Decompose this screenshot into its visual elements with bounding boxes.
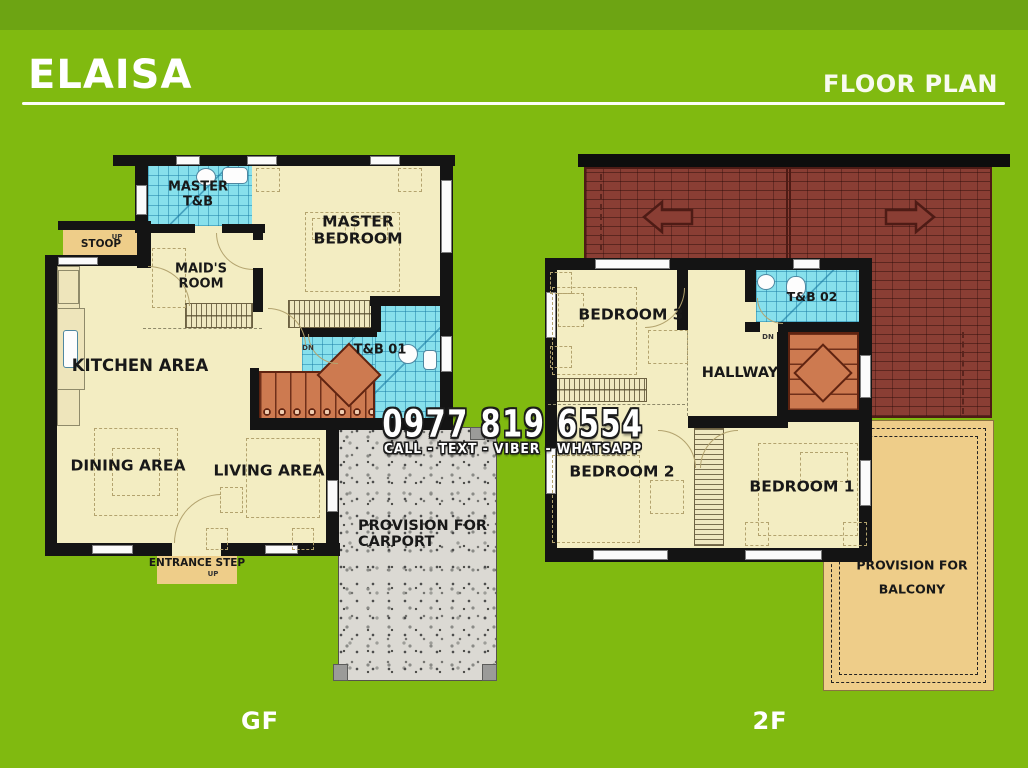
master-plant-2 [398, 168, 422, 192]
roof-eave-line-left [600, 174, 602, 250]
bedroom1-plant-1 [745, 522, 769, 546]
label-master-tb: MASTER T&B [168, 180, 228, 209]
gf-wall-left [45, 255, 57, 556]
master-closet [288, 300, 372, 328]
label-maids-room-line2: ROOM [175, 277, 227, 292]
carport-slab [338, 427, 497, 681]
sf-window-top-1 [595, 259, 670, 269]
kitchen-stove [58, 270, 79, 304]
bedroom2-chair [650, 480, 684, 514]
tb02-sink [757, 274, 775, 290]
sf-wall-tb02-bottom-a [745, 322, 760, 332]
master-plant-1 [256, 168, 280, 192]
label-entrance-step: ENTRANCE STEP [149, 558, 245, 570]
label-tb01: T&B 01 [354, 344, 407, 359]
gf-window-top-3 [370, 156, 400, 165]
sf-window-top-2 [793, 259, 820, 269]
gf-wall-maid-right-b [253, 268, 263, 312]
label-kitchen-area: KITCHEN AREA [72, 357, 208, 375]
marker-dn-tb02: DN [762, 333, 774, 341]
label-master-tb-line1: MASTER [168, 180, 228, 195]
page-title: ELAISA [28, 52, 192, 98]
living-plant-1 [206, 528, 228, 550]
sf-window-bottom-2 [745, 550, 822, 560]
label-carport: PROVISION FOR CARPORT [358, 518, 487, 550]
label-carport-line2: CARPORT [358, 534, 487, 550]
living-plant-2 [292, 528, 314, 550]
roof-slope-arrow-left [642, 198, 694, 236]
bedroom3-desk [648, 330, 688, 364]
label-hallway: HALLWAY [702, 365, 778, 381]
sf-wall-tb02-bottom-b [778, 322, 872, 332]
label-maids-room: MAID'S ROOM [175, 262, 227, 291]
contact-phone-number: 0977 819 6554 [382, 403, 643, 446]
label-balcony-line1: PROVISION FOR [856, 553, 967, 577]
gf-window-kitchen [58, 257, 98, 265]
sf-window-right-1 [860, 355, 871, 398]
gf-window-bottom-1 [92, 545, 133, 554]
gf-wall-top [113, 155, 455, 166]
bedroom3-plant-2 [550, 346, 572, 368]
gf-window-top-1 [176, 156, 200, 165]
label-master-tb-line2: T&B [168, 195, 228, 210]
maids-closet [185, 303, 253, 328]
gf-window-mastertb [136, 185, 147, 215]
sf-window-right-2 [860, 460, 871, 506]
gf-window-right-1 [441, 180, 452, 253]
gf-window-living-right [327, 480, 338, 512]
kitchen-maid-boundary [143, 328, 262, 329]
sf-window-bottom-1 [593, 550, 668, 560]
roof-ridge-bar [578, 154, 1010, 167]
label-maids-room-line1: MAID'S [175, 262, 227, 277]
gf-wall-stairs-left [250, 368, 259, 430]
header-divider [22, 102, 1005, 105]
tb01-sink [423, 350, 437, 370]
marker-up-stoop: UP [112, 233, 123, 241]
label-carport-line1: PROVISION FOR [358, 518, 487, 534]
sf-wall-hall-bottom [688, 416, 788, 428]
label-master-bedroom-line2: BEDROOM [314, 231, 403, 248]
roof-slope-arrow-right [884, 198, 936, 236]
bedroom3-plant-1 [550, 272, 572, 294]
contact-channels: CALL - TEXT - VIBER - WHATSAPP [384, 441, 642, 457]
gf-tag: GF [241, 707, 279, 735]
label-balcony: PROVISION FOR BALCONY [856, 553, 967, 601]
marker-up-entrance: UP [208, 570, 219, 578]
gf-wall-maid-right-a [253, 224, 263, 240]
roof-eave-line-right [962, 332, 964, 414]
page-subtitle: FLOOR PLAN [823, 70, 998, 98]
floor-plan-page: ELAISA FLOOR PLAN [0, 0, 1028, 768]
label-bedroom2: BEDROOM 2 [569, 463, 674, 480]
marker-dn-tb01: DN [302, 344, 314, 352]
label-living-area: LIVING AREA [213, 462, 324, 479]
label-master-bedroom-line1: MASTER [314, 214, 403, 231]
sf-tag: 2F [752, 707, 787, 735]
bedroom3-closet [548, 378, 647, 402]
label-master-bedroom: MASTER BEDROOM [314, 214, 403, 249]
sf-wall-stairs-left [777, 332, 788, 420]
gf-wall-tb01-stub [371, 296, 381, 332]
sf-wall-stairs-bottom [788, 410, 872, 422]
label-dining-area: DINING AREA [71, 457, 186, 474]
label-bedroom1: BEDROOM 1 [749, 478, 854, 495]
label-bedroom3: BEDROOM 3 [578, 306, 683, 323]
gf-window-right-2 [441, 336, 452, 372]
label-balcony-line2: BALCONY [856, 577, 967, 601]
bedroom1-plant-2 [843, 522, 867, 546]
sf-wall-tb02-left [745, 258, 756, 302]
living-side-chair [220, 487, 243, 513]
gf-wall-stoop-top [58, 221, 140, 230]
carport-pillar-left [333, 664, 348, 681]
label-tb02: T&B 02 [787, 290, 838, 304]
carport-pillar-right [482, 664, 497, 681]
gf-window-top-2 [247, 156, 277, 165]
